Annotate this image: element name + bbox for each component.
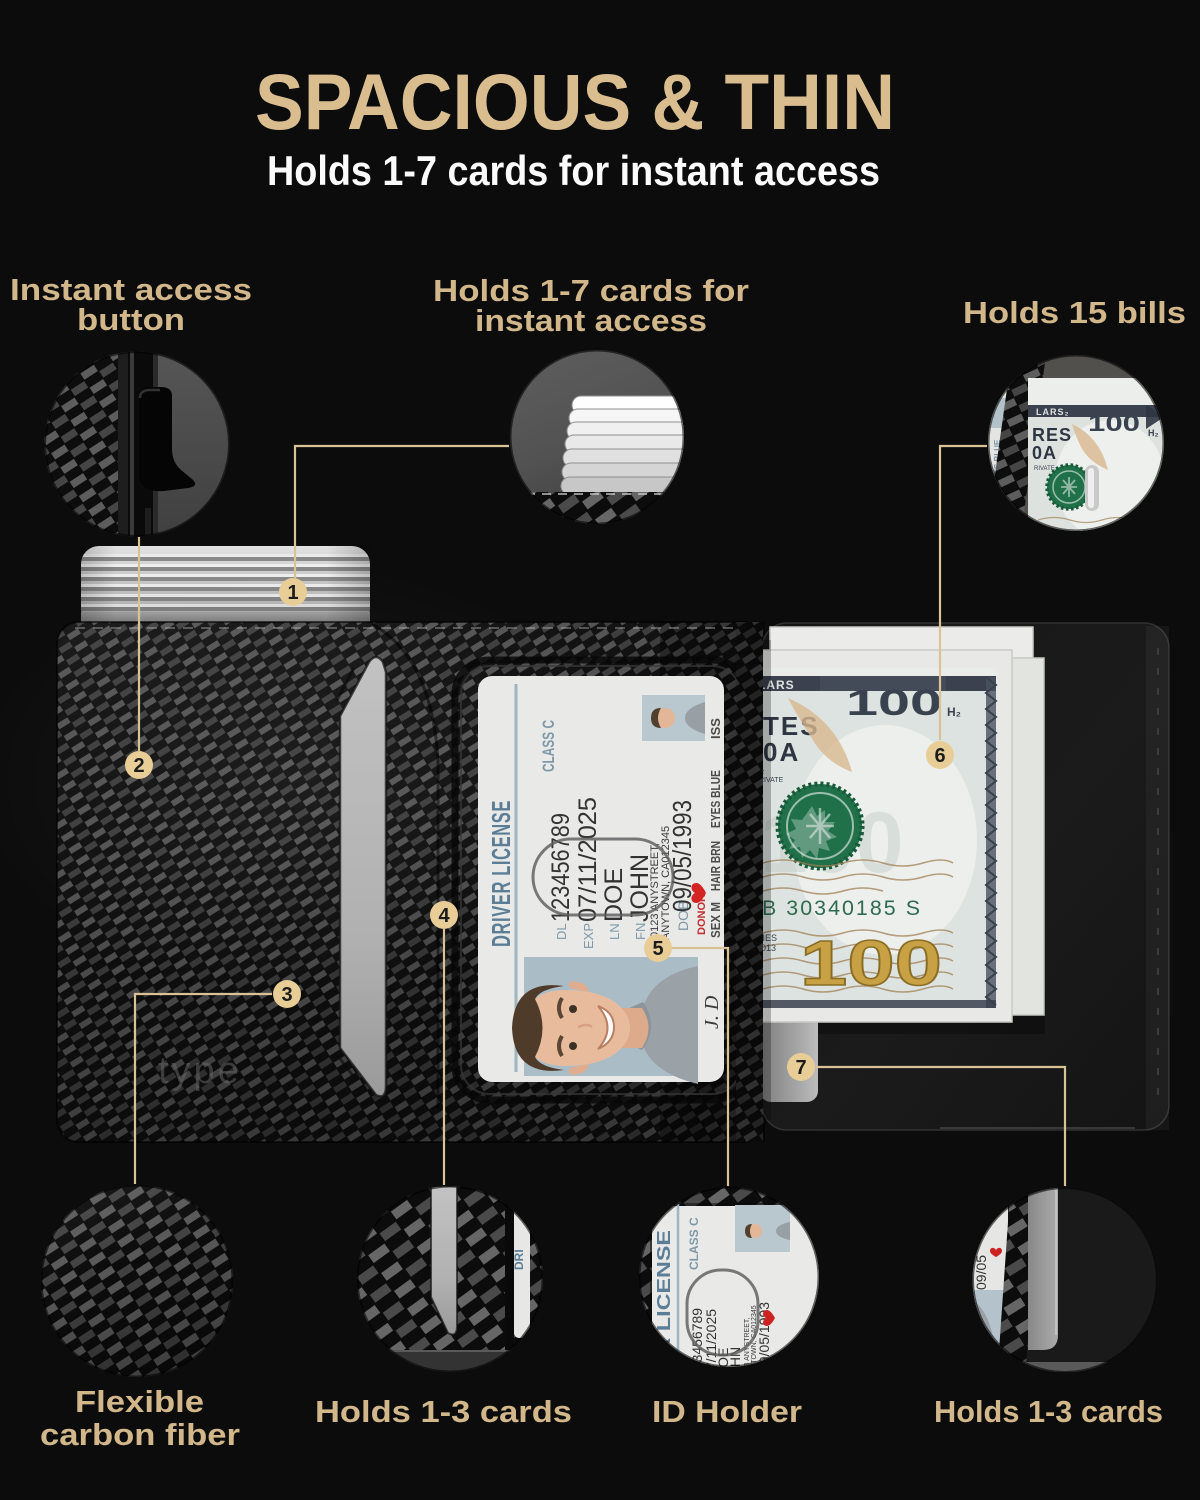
svg-text:0A: 0A [1032,443,1057,463]
svg-text:ID Holder: ID Holder [652,1394,802,1429]
svg-text:Holds 15 bills: Holds 15 bills [963,295,1186,330]
svg-text:button: button [77,302,185,337]
svg-text:ISS: ISS [708,718,723,739]
svg-text:CLASS C: CLASS C [687,1217,701,1270]
svg-text:RES: RES [1032,425,1072,445]
svg-text:123456789: 123456789 [547,813,575,922]
svg-text:100: 100 [1088,410,1140,436]
svg-text:3: 3 [281,984,292,1006]
svg-text:Holds 1-3 cards: Holds 1-3 cards [934,1394,1163,1429]
svg-text:Flexible: Flexible [75,1384,204,1419]
svg-text:07/11/2025: 07/11/2025 [574,797,602,922]
svg-text:instant access: instant access [475,303,707,338]
svg-text:DL: DL [554,923,569,940]
svg-text:type: type [158,1050,242,1092]
svg-text:4: 4 [438,905,450,927]
svg-text:H₂: H₂ [1148,428,1159,438]
svg-text:FN: FN [633,923,648,940]
svg-text:100: 100 [800,927,942,999]
svg-text:Holds 1-3 cards: Holds 1-3 cards [315,1394,572,1429]
svg-text:EYES BLUE: EYES BLUE [708,770,723,828]
svg-text:LN: LN [607,923,622,940]
svg-text:RIVATE: RIVATE [1034,466,1055,472]
svg-text:Holds 1-7 cards for instant ac: Holds 1-7 cards for instant access [267,147,880,194]
svg-text:J. D: J. D [701,995,723,1029]
svg-text:SEX M: SEX M [708,902,723,938]
svg-text:LARS₂: LARS₂ [1036,407,1070,417]
svg-text:EXP: EXP [581,923,596,949]
svg-text:H₂: H₂ [947,705,961,719]
svg-text:100: 100 [846,682,942,723]
svg-text:7: 7 [795,1057,806,1079]
svg-text:DRIVER LICENSE: DRIVER LICENSE [486,800,516,947]
svg-text:HAIR BRN: HAIR BRN [708,841,723,891]
svg-text:2: 2 [133,755,144,777]
svg-text:CLASS C: CLASS C [539,720,558,772]
svg-text:carbon fiber: carbon fiber [40,1417,240,1452]
svg-text:6: 6 [934,745,945,767]
svg-text:1: 1 [287,582,298,604]
svg-text:B 30340185 S: B 30340185 S [762,897,922,920]
svg-text:DRI: DRI [512,1249,526,1270]
svg-text:5: 5 [652,938,663,960]
svg-text:SPACIOUS & THIN: SPACIOUS & THIN [255,57,895,146]
